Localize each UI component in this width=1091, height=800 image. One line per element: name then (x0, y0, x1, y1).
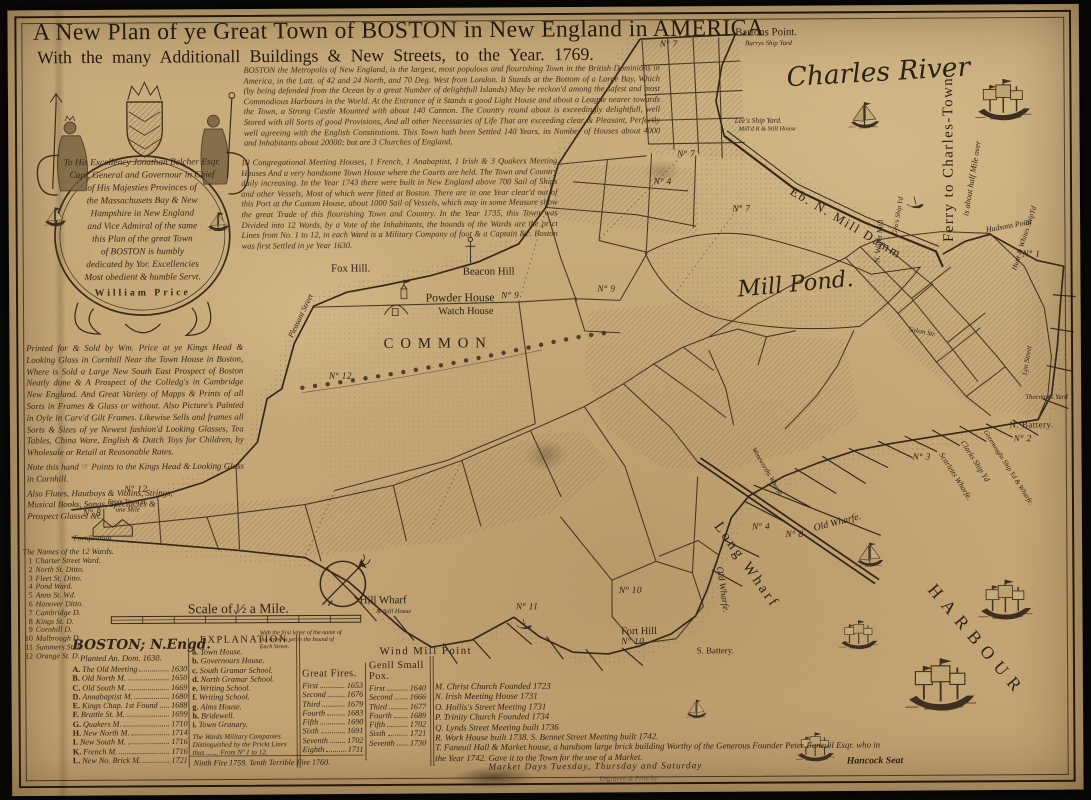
ward-number-label: Nº 4 (752, 522, 770, 532)
map-label-fox-hill: Fox Hill. (331, 263, 370, 275)
map-label-engraver: Engraven & Print by (599, 774, 657, 782)
map-label-hill-wharf: Hill Wharf (360, 594, 407, 606)
ward-number-label: Nº 11 (516, 602, 539, 612)
map-label-hancock-seat: Hancock Seat (847, 755, 904, 766)
ward-number-label: Nº 12 (124, 485, 147, 495)
ward-number-label: Nº 7 (732, 204, 750, 214)
map-label-ferry-charlestown: Ferry to Charles-Town (940, 77, 958, 242)
map-label-barrys-ship-yard: Barrys Ship Yard (745, 39, 792, 47)
map-label-wind-mill-point: Wind Mill Point (380, 645, 473, 657)
map-label-old-wharf-2: Old Wharfe. (714, 566, 730, 613)
map-label-from-town-h: From Town H. (108, 498, 148, 506)
ward-number-label: Nº 2 (1014, 434, 1032, 444)
map-label-lees-ship-yard: Lee's Ship Yard. (735, 116, 782, 125)
map-label-salem-street: Salem Str. (908, 325, 937, 338)
map-label-old-wharf: Old Wharfe. (813, 511, 863, 534)
map-label-n-battery: N. Battery. (1010, 419, 1054, 429)
map-label-lyn-street: Lyn Street (1020, 345, 1034, 376)
map-label-geos-ship-yard: Geo's Ship Yd (891, 196, 905, 235)
map-label-ferry-note: is about half Mile over (960, 140, 982, 217)
map-label-layer: Bartons Point.Barrys Ship YardCharles Ri… (7, 4, 1083, 796)
ward-number-label: Nº 8 (785, 530, 803, 540)
map-label-hill-wharf-note: & Still House (376, 608, 411, 615)
map-label-harbour: HARBOUR (923, 580, 1030, 701)
map-label-fort-hill: Fort Hill (621, 626, 657, 637)
map-label-mill-pond: Mill Pond. (737, 266, 855, 302)
ward-number-label: Nº 8 (83, 509, 101, 519)
ward-number-label: Nº 7 (677, 150, 695, 160)
ward-number-label: Nº 12 (329, 372, 352, 382)
ward-number-label: Nº 7 (660, 40, 678, 50)
ward-number-label: Nº 3 (913, 453, 931, 463)
ward-number-label: Nº 9 (501, 291, 519, 301)
ward-number-label: Nº 4 (654, 177, 672, 187)
map-label-beacon-hill: Beacon Hill (463, 266, 515, 278)
ward-number-label: Nº 10 (621, 637, 644, 647)
map-sheet: A New Plan of ye Great Town of BOSTON in… (7, 4, 1083, 796)
map-label-hunt-whites-ship-yard: Hunt & Whites ShipYd (1009, 205, 1038, 271)
map-label-scale-label: Scale of ½ a Mile. (188, 602, 289, 618)
map-label-powder-house: Powder House (426, 290, 495, 305)
map-label-pleasant-street: Pleasant Street (286, 293, 315, 340)
map-label-one-mile: one Mile (116, 506, 140, 514)
map-label-still-house: Mill'd R & Still House (739, 125, 796, 132)
ward-number-label: Nº 1 (1022, 250, 1040, 260)
map-label-clarks-ship-yd: Clarks Ship Yd (959, 439, 992, 484)
ward-number-label: Nº 9 (597, 285, 615, 295)
ward-number-label: Nº 10 (619, 586, 642, 596)
map-label-watch-house: Watch House (438, 306, 493, 317)
map-label-n-water-mill: N. Water Mill (873, 219, 885, 263)
map-label-common: COMMON (384, 336, 493, 353)
map-label-fortification: Fortification (73, 533, 111, 542)
map-label-bartons-point: Bartons Point. (735, 26, 797, 38)
map-label-mill-damm: Eb. N. Mill Damm (787, 184, 905, 263)
map-label-s-battery: S. Battery. (697, 645, 734, 655)
map-label-wentworths-wharfe: Wentworths Wharfe (750, 446, 784, 497)
map-label-thorntons-yard: Thorntons Yard (1025, 393, 1068, 401)
